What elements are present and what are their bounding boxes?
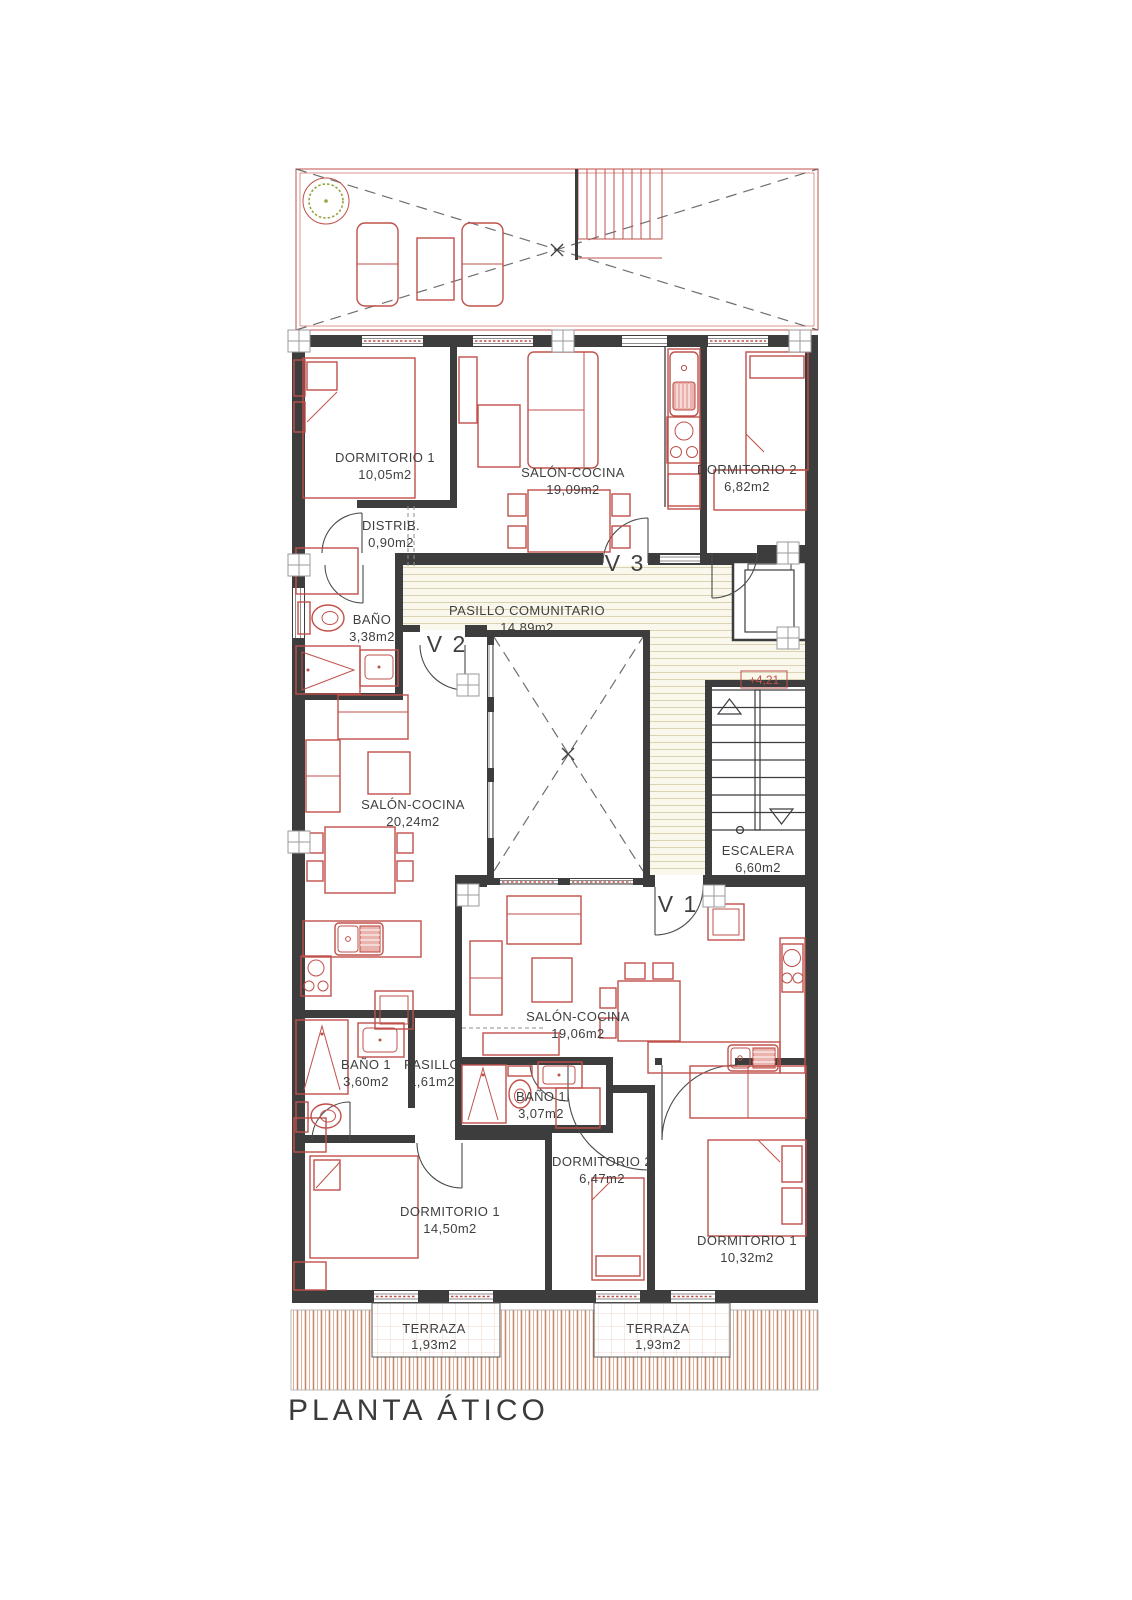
dining-set-c [600, 963, 680, 1041]
label-dorm1a-area: 10,05m2 [358, 467, 411, 482]
label-bano1-b-area: 3,60m2 [343, 1074, 389, 1089]
window-corridor-top [660, 555, 700, 563]
label-bano1-c-area: 3,07m2 [518, 1106, 564, 1121]
tree-icon [303, 178, 349, 224]
label-escalera-name: ESCALERA [722, 843, 795, 858]
plan-title: PLANTA ÁTICO [288, 1394, 549, 1427]
stairs-down-arrow [770, 809, 793, 824]
roof-stairs [575, 169, 662, 260]
windows-courtyard-left [488, 645, 494, 838]
label-dorm1c-area: 10,32m2 [720, 1250, 773, 1265]
terrace-sofa-left [357, 223, 398, 306]
furniture-apartment-b [294, 695, 421, 1290]
coffee-table-a [478, 405, 520, 467]
label-terraza-c-area: 1,93m2 [635, 1337, 681, 1352]
stairs-up-arrow [718, 699, 741, 714]
label-terraza-b-name: TERRAZA [402, 1321, 465, 1336]
label-distrib-name: DISTRIB. [362, 518, 420, 533]
label-pasillo-b-name: PASILLO [404, 1057, 460, 1072]
label-salon-c-area: 19,06m2 [551, 1026, 604, 1041]
door-bano-a [325, 565, 363, 603]
label-dorm2c-name: DORMITORIO 2 [552, 1154, 652, 1169]
deck-strip [291, 1310, 818, 1390]
label-dorm1b-area: 14,50m2 [423, 1221, 476, 1236]
staircase [712, 690, 806, 834]
label-salon-a-area: 19,09m2 [546, 482, 599, 497]
terrace-sofa-right [462, 223, 503, 306]
label-terraza-c-name: TERRAZA [626, 1321, 689, 1336]
sofa-salon-a [528, 352, 598, 468]
kitchen-a [667, 349, 700, 509]
door-dorm1b [417, 1143, 462, 1188]
label-salon-c-name: SALÓN-COCINA [526, 1009, 630, 1024]
floor-plan-page: +4,21 DORMITORIO 1 10,05m2 SALÓN-COCINA … [0, 0, 1132, 1600]
cross-center-mark [551, 244, 563, 256]
level-marker-text: +4,21 [749, 673, 780, 687]
label-bano1-b-name: BAÑO 1 [341, 1057, 391, 1072]
label-salon-b-area: 20,24m2 [386, 814, 439, 829]
label-dorm2a-area: 6,82m2 [724, 479, 770, 494]
floor-plan-drawing: +4,21 DORMITORIO 1 10,05m2 SALÓN-COCINA … [0, 0, 1132, 1600]
label-dorm2c-area: 6,47m2 [579, 1171, 625, 1186]
courtyard-void [487, 630, 650, 885]
label-door-v2: V 2 [427, 631, 468, 657]
door-dorm1a [322, 513, 362, 553]
label-pasillo-com-name: PASILLO COMUNITARIO [449, 603, 605, 618]
label-bano-a-area: 3,38m2 [349, 629, 395, 644]
window-top-1 [362, 336, 423, 346]
label-pasillo-b-area: 1,61m2 [409, 1074, 455, 1089]
label-terraza-b-area: 1,93m2 [411, 1337, 457, 1352]
label-salon-b-name: SALÓN-COCINA [361, 797, 465, 812]
label-dorm1a-name: DORMITORIO 1 [335, 450, 435, 465]
wardrobe-salon-a [459, 357, 477, 423]
label-door-v3: V 3 [605, 550, 646, 576]
dining-set-a [508, 490, 630, 552]
window-top-2 [473, 336, 533, 346]
label-distrib-area: 0,90m2 [368, 535, 414, 550]
dining-set-b [307, 827, 413, 893]
bed-dorm1c [690, 1066, 806, 1236]
label-dorm2a-name: DORMITORIO 2 [697, 462, 797, 477]
roof-terrace [296, 169, 818, 330]
label-dorm1c-name: DORMITORIO 1 [697, 1233, 797, 1248]
label-bano-a-name: BAÑO [353, 612, 391, 627]
label-salon-a-name: SALÓN-COCINA [521, 465, 625, 480]
label-pasillo-com-area: 14,89m2 [500, 620, 553, 635]
door-dorm1c [662, 1065, 737, 1140]
label-escalera-area: 6,60m2 [735, 860, 781, 875]
kitchen-c [648, 904, 805, 1073]
window-top-4 [708, 336, 768, 346]
sofa-salon-b [306, 695, 410, 812]
label-bano1-c-name: BAÑO 1 [516, 1089, 566, 1104]
window-top-3 [622, 336, 667, 346]
label-dorm1b-name: DORMITORIO 1 [400, 1204, 500, 1219]
label-door-v1: V 1 [658, 891, 699, 917]
